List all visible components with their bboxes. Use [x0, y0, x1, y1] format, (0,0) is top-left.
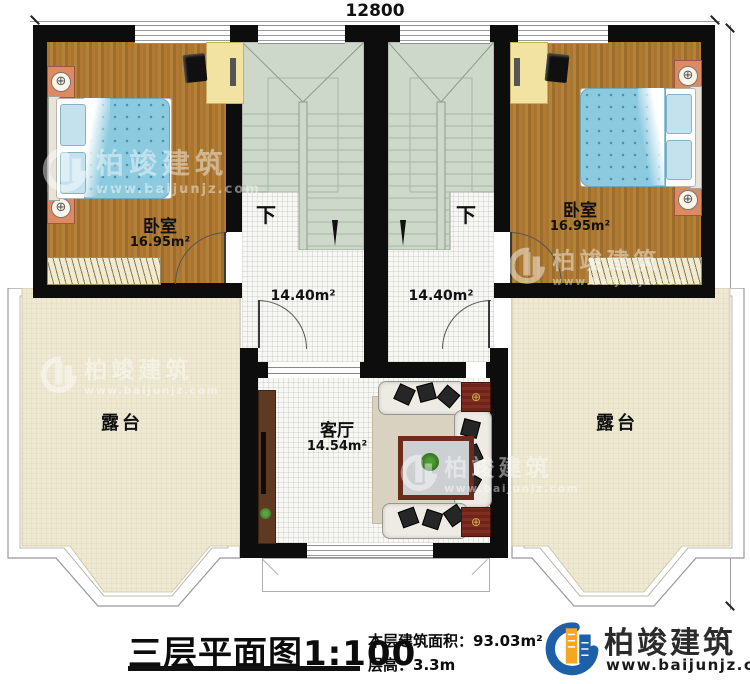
dimension-line-top — [30, 21, 720, 22]
living-room-name: 客厅 — [287, 422, 387, 441]
wall — [240, 362, 268, 378]
bed-sheet-fold — [638, 88, 664, 185]
pillow — [60, 152, 86, 194]
terrace-right — [508, 288, 746, 618]
wall — [608, 25, 715, 42]
dresser-decor — [230, 58, 236, 86]
wall — [390, 362, 466, 378]
wall — [433, 543, 508, 558]
knob-icon: ⊕ — [471, 391, 481, 403]
stair-hall-left-area: 14.40m² — [253, 289, 353, 304]
terrace-right-name: 露台 — [582, 414, 652, 434]
stair-hall-right-area: 14.40m² — [391, 289, 491, 304]
stair-hall-right-direction: 下 — [450, 204, 482, 226]
bedroom-left-area: 16.95m² — [110, 236, 210, 250]
brand-url: www.baijunjz.com — [606, 656, 750, 674]
floor-plan-canvas: 12800 10600 — [0, 0, 750, 684]
floor-height-value: 3.3m — [413, 656, 455, 674]
dresser-decor — [514, 58, 520, 86]
wall — [490, 378, 508, 558]
terrace-left-name: 露台 — [87, 414, 157, 434]
tv — [261, 432, 266, 494]
plant — [260, 508, 271, 519]
door-leaf — [510, 232, 512, 283]
wall — [33, 25, 135, 42]
side-cabinet: ⊕ — [461, 382, 491, 412]
wall — [240, 543, 307, 558]
wall — [230, 25, 258, 42]
floor-area-info: 本层建筑面积：93.03m² — [368, 630, 543, 651]
wall — [33, 25, 47, 298]
window — [400, 25, 490, 44]
tv — [183, 53, 208, 83]
bedroom-left-name: 卧室 — [110, 218, 210, 237]
dresser — [206, 42, 244, 104]
tv — [545, 53, 570, 83]
wall — [364, 25, 388, 378]
wardrobe — [588, 257, 702, 285]
pillow — [666, 140, 692, 180]
floor-height-label: 层高： — [368, 656, 413, 674]
lamp-icon: ⊕ — [678, 190, 698, 210]
nightstand: ⊕ — [47, 66, 75, 98]
wall — [240, 378, 258, 558]
wall — [360, 362, 390, 378]
floor-area-label: 本层建筑面积： — [368, 632, 473, 650]
wardrobe — [47, 257, 161, 285]
lamp-icon: ⊕ — [678, 66, 698, 86]
wall — [494, 283, 715, 298]
side-cabinet: ⊕ — [461, 507, 491, 537]
title-underline — [128, 666, 360, 671]
window — [258, 25, 345, 44]
sliding-door — [268, 367, 360, 374]
living-room-area: 14.54m² — [287, 440, 387, 454]
lamp-icon: ⊕ — [51, 72, 71, 92]
dimension-width-label: 12800 — [315, 2, 435, 21]
window — [307, 545, 433, 558]
floor-area-value: 93.03m² — [473, 632, 543, 650]
wall — [490, 25, 518, 42]
bed-sheet-fold — [84, 98, 110, 197]
stair-hall-left-direction: 下 — [250, 204, 282, 226]
lamp-icon: ⊕ — [51, 198, 71, 218]
dimension-tick — [30, 15, 40, 25]
floor-height-info: 层高：3.3m — [368, 654, 455, 675]
door-leaf — [488, 300, 490, 348]
lower-roof-outline — [262, 558, 490, 592]
knob-icon: ⊕ — [471, 516, 481, 528]
terrace-left — [6, 288, 242, 618]
dimension-tick — [710, 15, 720, 25]
plant — [421, 453, 439, 471]
pillow — [666, 94, 692, 134]
wall — [494, 42, 510, 232]
pillow — [60, 104, 86, 146]
wall — [486, 362, 508, 378]
bedroom-right-area: 16.95m² — [530, 220, 630, 234]
door-leaf — [258, 300, 260, 348]
bedroom-right-name: 卧室 — [530, 202, 630, 221]
wall — [33, 283, 242, 298]
wall — [701, 25, 715, 298]
brand-logo-icon — [545, 620, 599, 678]
door-leaf — [224, 232, 226, 283]
